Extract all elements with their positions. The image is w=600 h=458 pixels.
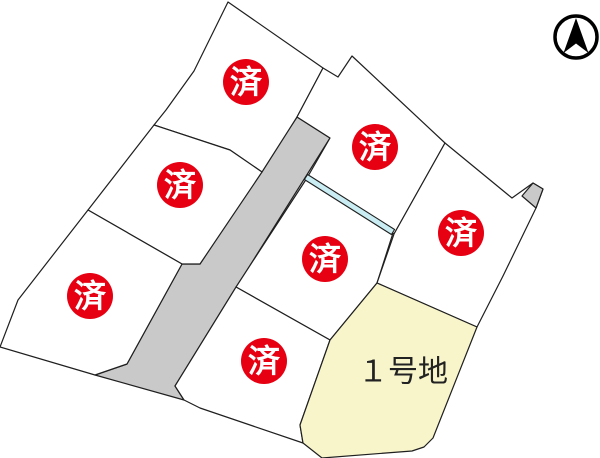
subdivision-map-svg: 済済済済済済済１号地 [0, 0, 600, 458]
sold-stamp-bottom-left: 済 [67, 273, 113, 319]
lot-map: 済済済済済済済１号地 [0, 0, 600, 458]
sold-stamp-text: 済 [248, 342, 281, 380]
sold-stamp-right: 済 [438, 210, 484, 256]
sold-stamp-text: 済 [309, 240, 342, 278]
sold-stamp-text: 済 [445, 214, 478, 252]
sold-stamp-center: 済 [302, 236, 348, 282]
lot-1-label[interactable]: １号地 [358, 355, 448, 390]
sold-stamp-text: 済 [74, 277, 107, 315]
sold-stamp-text: 済 [359, 128, 392, 166]
sold-stamp-bottom-center: 済 [241, 338, 287, 384]
sold-stamp-text: 済 [164, 166, 197, 204]
sold-stamp-top-right: 済 [352, 124, 398, 170]
sold-stamp-top-left: 済 [223, 59, 269, 105]
sold-stamp-mid-left: 済 [157, 162, 203, 208]
sold-stamp-text: 済 [230, 63, 263, 101]
